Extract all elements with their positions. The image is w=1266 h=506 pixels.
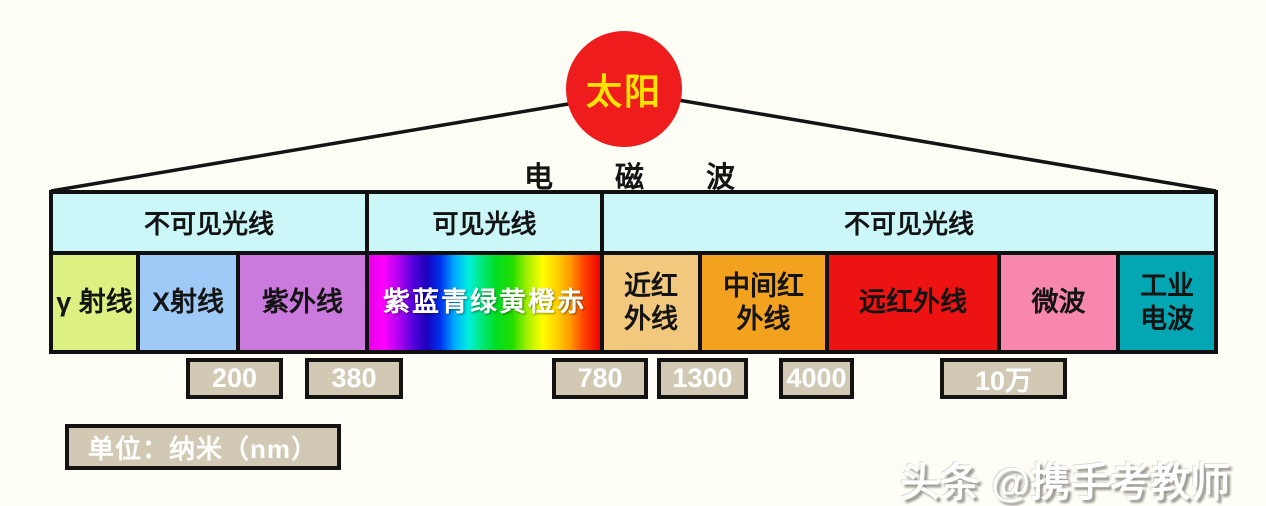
band-far-infrared: 远红外线 — [829, 255, 997, 350]
sun-circle: 太阳 — [566, 31, 682, 147]
band-mid-infrared: 中间红 外线 — [702, 255, 825, 350]
band-x-ray: X射线 — [140, 255, 236, 350]
band-gamma-ray: γ 射线 — [53, 255, 136, 350]
wavelength-marker-4000: 4000 — [779, 358, 854, 399]
header-invisible-light-right: 不可见光线 — [604, 194, 1214, 251]
wavelength-marker-780: 780 — [552, 358, 648, 399]
band-industrial-radio-wave: 工业 电波 — [1120, 255, 1214, 350]
wavelength-marker-100k: 10万 — [940, 358, 1067, 399]
electromagnetic-spectrum-diagram: 太阳 电磁波 不可见光线 可见光线 不可见光线 γ 射线 X射线 紫外线 紫蓝青… — [0, 0, 1266, 506]
header-invisible-light-left: 不可见光线 — [53, 194, 365, 251]
spectrum-bar: 不可见光线 可见光线 不可见光线 γ 射线 X射线 紫外线 紫蓝青绿黄橙赤 近红… — [49, 190, 1218, 354]
band-visible-spectrum: 紫蓝青绿黄橙赤 — [369, 255, 600, 350]
band-ultraviolet: 紫外线 — [240, 255, 365, 350]
spectrum-band-row: γ 射线 X射线 紫外线 紫蓝青绿黄橙赤 近红 外线 中间红 外线 远红外线 微… — [53, 255, 1214, 350]
watermark-text: 头条 @携手考教师 — [900, 450, 1230, 506]
band-near-infrared: 近红 外线 — [604, 255, 698, 350]
spectrum-header-row: 不可见光线 可见光线 不可见光线 — [53, 194, 1214, 251]
wavelength-marker-200: 200 — [186, 358, 283, 399]
band-microwave: 微波 — [1001, 255, 1116, 350]
sun-label: 太阳 — [586, 63, 662, 115]
unit-label-box: 单位：纳米（nm） — [65, 424, 341, 470]
sun-ray-left-line — [51, 103, 574, 191]
header-visible-light: 可见光线 — [369, 194, 600, 251]
wavelength-marker-1300: 1300 — [657, 358, 748, 399]
wavelength-marker-380: 380 — [305, 358, 403, 399]
